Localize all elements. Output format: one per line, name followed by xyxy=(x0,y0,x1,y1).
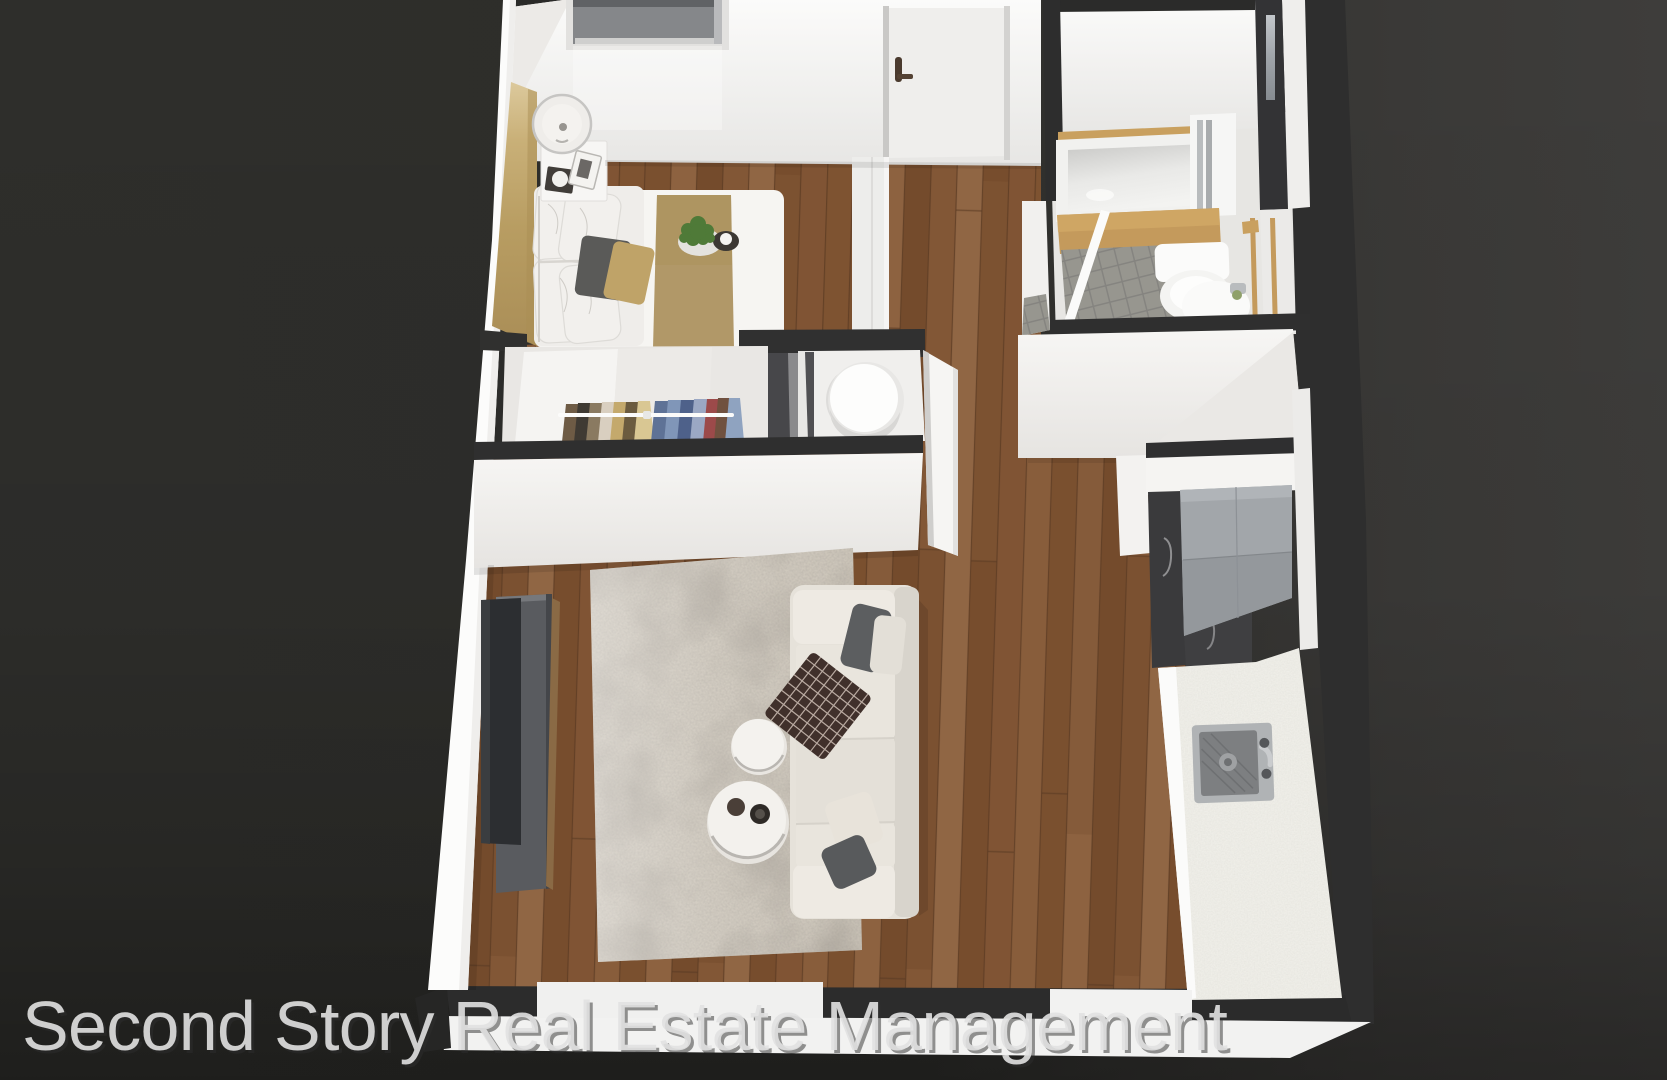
svg-text:Second Story Real Estate Manag: Second Story Real Estate Management xyxy=(22,987,1227,1065)
